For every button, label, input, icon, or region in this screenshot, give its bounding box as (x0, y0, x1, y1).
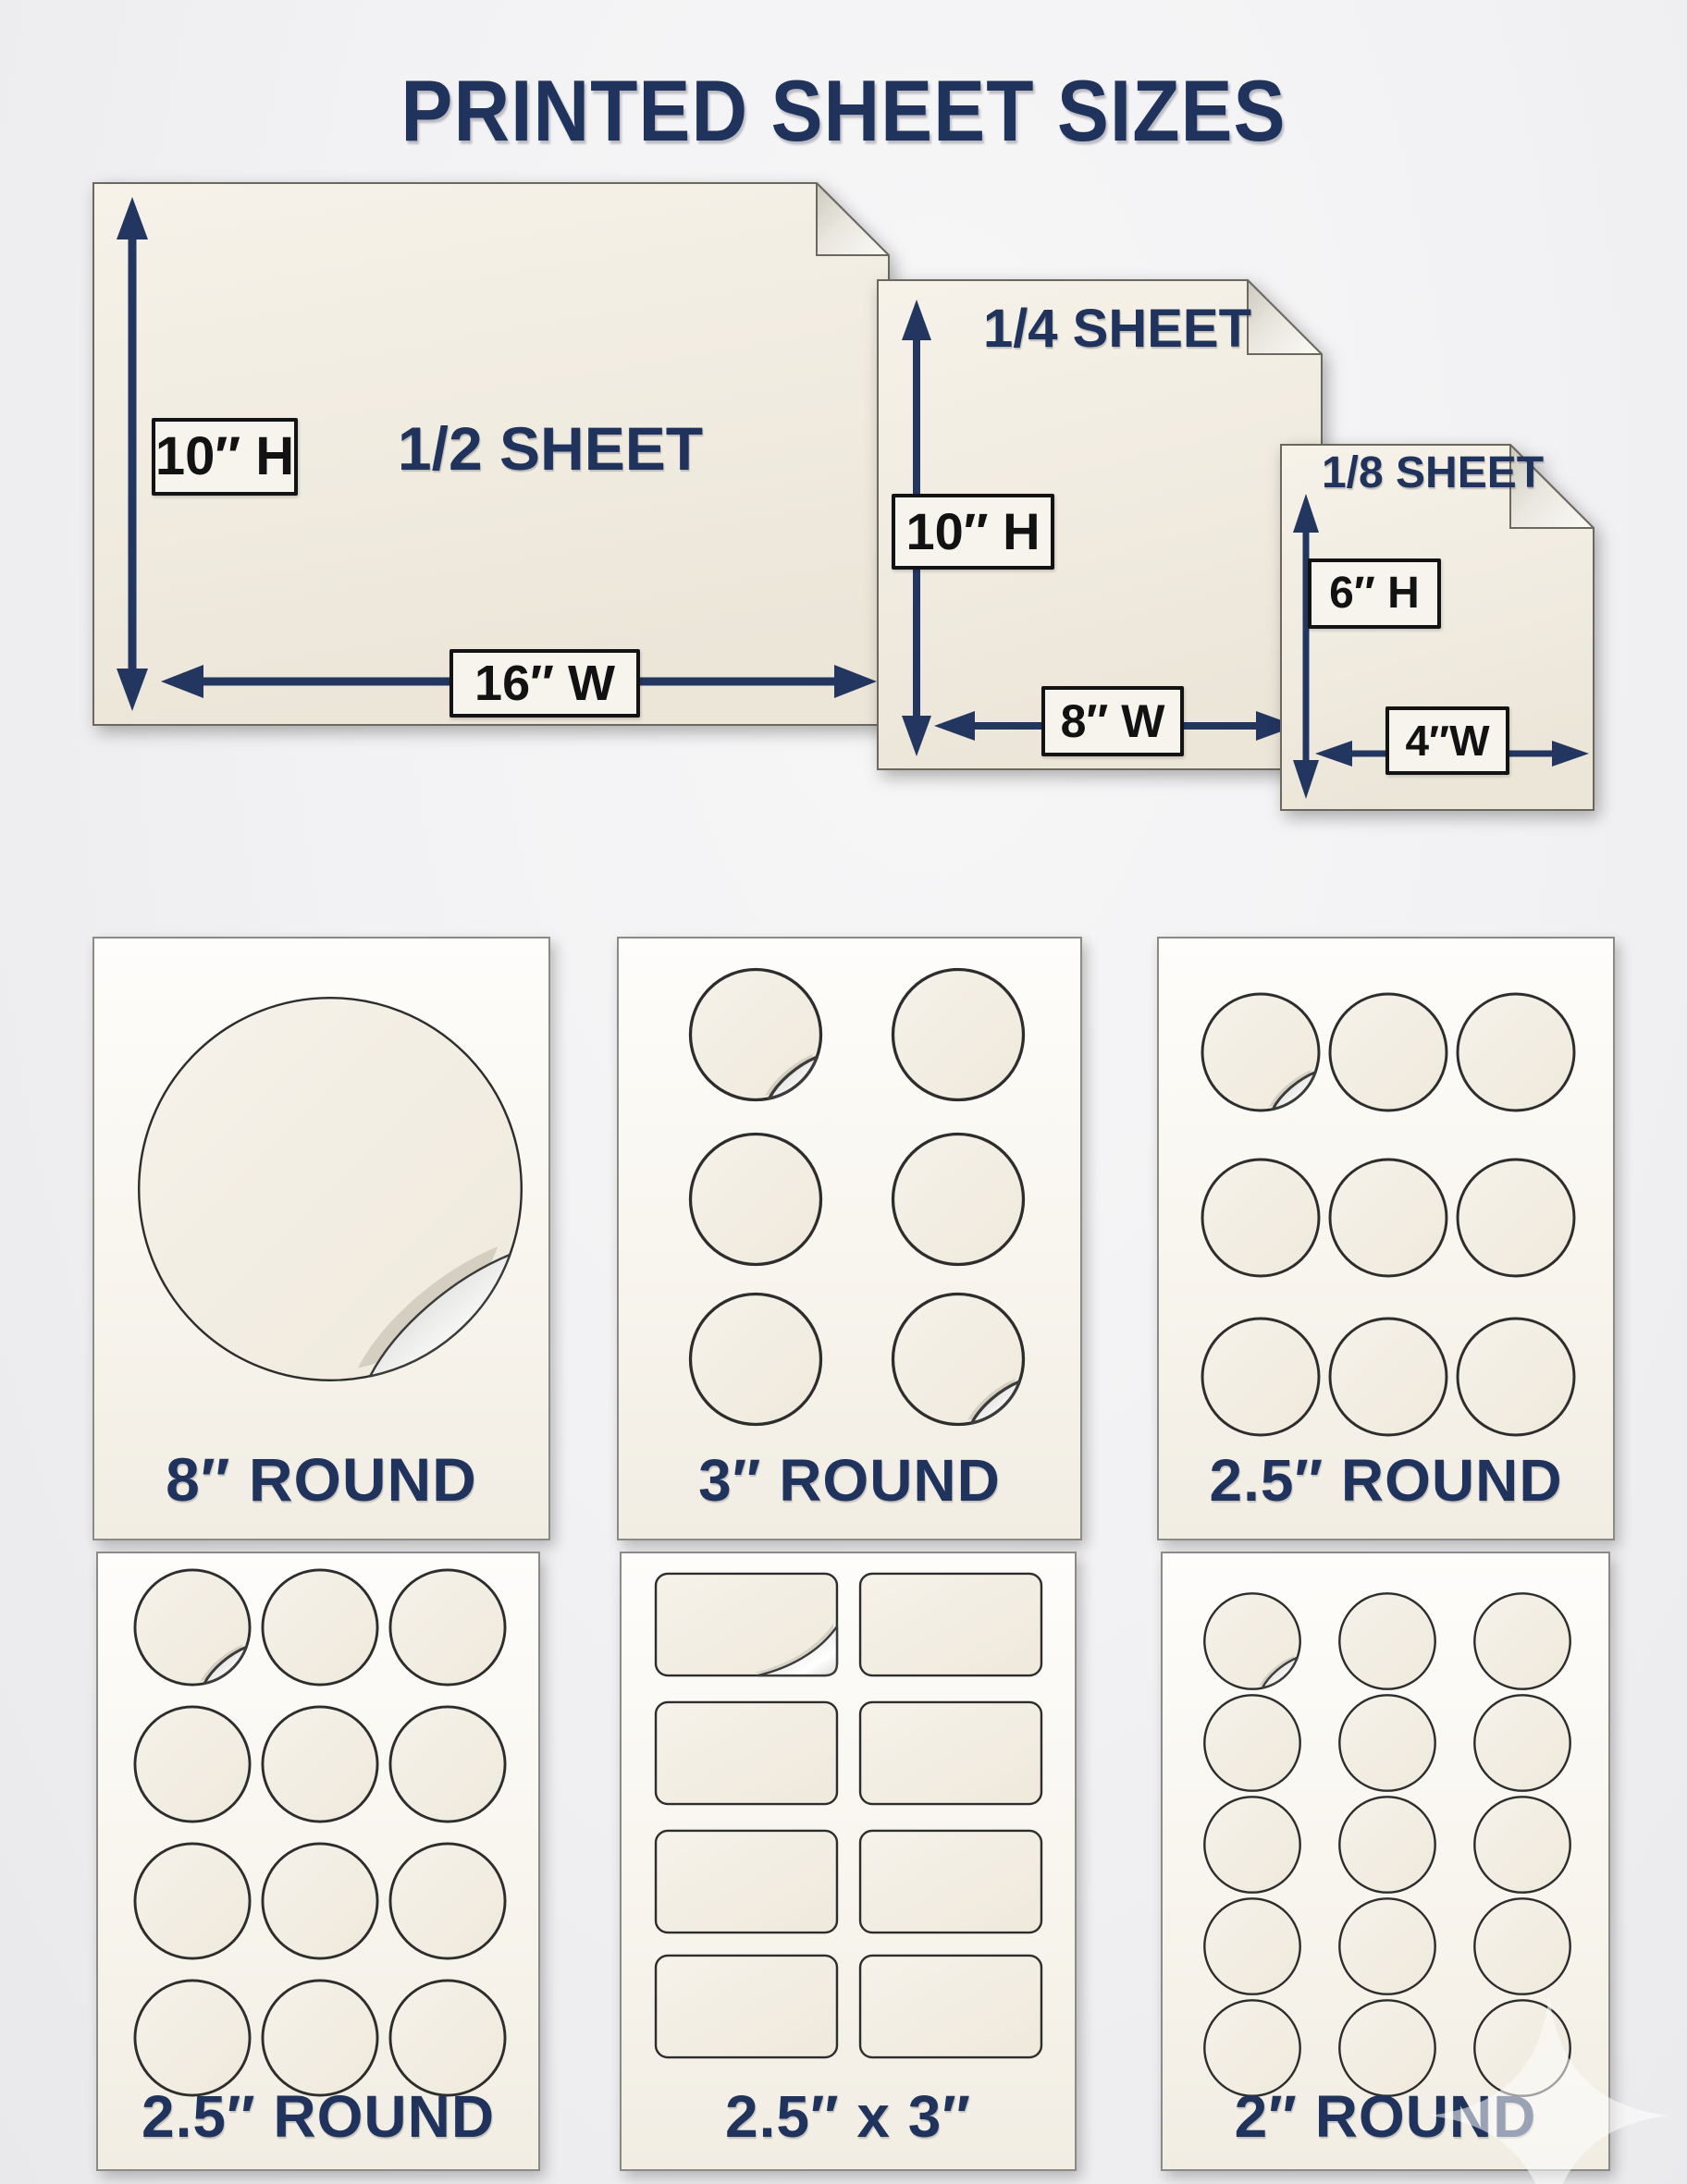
sticker-circle (1336, 1590, 1438, 1692)
panel-2-5in-round-9up: 2.5″ ROUND (1157, 937, 1615, 1540)
eighth-sheet-width-label: 4″W (1385, 706, 1509, 775)
panel-8in-round: 8″ ROUND (92, 937, 550, 1540)
panel-2-5x3in-rect: 2.5″ x 3″ (620, 1552, 1077, 2171)
sticker-circle (1326, 1156, 1450, 1280)
sticker-circle (1472, 1896, 1573, 1997)
sticker-circle (131, 1840, 253, 1962)
sticker-circle (686, 1290, 825, 1429)
sticker-circle (1336, 1692, 1438, 1794)
quarter-sheet-height-label: 10″ H (892, 494, 1054, 570)
quarter-sheet-diagram: 1/4 SHEET 10″ H 8″ W (877, 279, 1323, 770)
panel-label: 3″ ROUND (619, 1446, 1080, 1515)
sticker-circle (1336, 1896, 1438, 1997)
half-sheet-label: 1/2 SHEET (333, 413, 768, 484)
sticker-circle (1201, 1896, 1303, 1997)
panel-label: 2.5″ x 3″ (622, 2082, 1075, 2151)
quarter-sheet-label: 1/4 SHEET (914, 298, 1321, 360)
half-sheet-height-label: 10″ H (152, 418, 298, 496)
sticker-rounded-rect (857, 1570, 1044, 1679)
eighth-sheet-diagram: 1/8 SHEET 6″ H 4″W (1280, 444, 1595, 811)
sticker-circle (1336, 1794, 1438, 1896)
peeled-sticker-circle (1201, 1590, 1303, 1692)
sticker-circle (1199, 1156, 1323, 1280)
panel-label: 2.5″ ROUND (98, 2082, 538, 2151)
sticker-circle (1454, 1156, 1578, 1280)
sticker-circle (387, 1703, 509, 1825)
sticker-circle (1326, 990, 1450, 1114)
sticker-circle (131, 1977, 253, 2099)
fold-corner-icon (817, 183, 889, 255)
sticker-circle (1201, 1794, 1303, 1896)
sticker-circle (259, 1703, 381, 1825)
sticker-rounded-rect (653, 1952, 840, 2061)
peeled-sticker-rounded-rect (653, 1570, 840, 1679)
sticker-rounded-rect (653, 1827, 840, 1936)
eighth-sheet-height-label: 6″ H (1308, 558, 1441, 629)
sticker-circle (1326, 1315, 1450, 1439)
sticker-circle (1201, 1692, 1303, 1794)
panel-2-5in-round-12up: 2.5″ ROUND (96, 1552, 540, 2171)
peeled-sticker-circle (889, 1290, 1028, 1429)
sticker-rounded-rect (653, 1699, 840, 1808)
sticker-rounded-rect (857, 1952, 1044, 2061)
sticker-rounded-rect (857, 1827, 1044, 1936)
peeled-sticker-circle (127, 986, 534, 1393)
sticker-circle (1472, 1590, 1573, 1692)
half-sheet-diagram: 1/2 SHEET 10″ H 16″ W (92, 182, 890, 726)
panel-label: 8″ ROUND (94, 1444, 548, 1515)
sticker-circle (889, 1130, 1028, 1269)
sticker-circle (1472, 1692, 1573, 1794)
sticker-grid (98, 1553, 538, 2169)
peeled-sticker-circle (686, 965, 825, 1104)
half-sheet-width-label: 16″ W (449, 649, 640, 718)
sticker-circle (259, 1977, 381, 2099)
sticker-circle (259, 1840, 381, 1962)
quarter-sheet-width-label: 8″ W (1041, 686, 1184, 756)
sticker-circle (387, 1977, 509, 2099)
eighth-sheet-label: 1/8 SHEET (1280, 448, 1585, 498)
sticker-circle (1454, 990, 1578, 1114)
sticker-circle (1472, 1794, 1573, 1896)
sticker-circle (1199, 1315, 1323, 1439)
sticker-circle (259, 1566, 381, 1688)
sticker-circle (889, 965, 1028, 1104)
peeled-sticker-circle (131, 1566, 253, 1688)
sticker-circle (387, 1566, 509, 1688)
page-title: PRINTED SHEET SIZES (0, 61, 1687, 162)
sparkle-watermark-icon (1429, 1995, 1669, 2184)
panel-3in-round: 3″ ROUND (617, 937, 1082, 1540)
printed-sheet-sizes-infographic: PRINTED SHEET SIZES 1/2 SHEET 10″ H 16″ … (0, 0, 1687, 2184)
sticker-grid (622, 1553, 1075, 2169)
panel-label: 2.5″ ROUND (1159, 1446, 1613, 1515)
sticker-circle (131, 1703, 253, 1825)
peeled-sticker-circle (1199, 990, 1323, 1114)
sticker-circle (686, 1130, 825, 1269)
sticker-rounded-rect (857, 1699, 1044, 1808)
sticker-circle (1454, 1315, 1578, 1439)
sticker-circle (387, 1840, 509, 1962)
